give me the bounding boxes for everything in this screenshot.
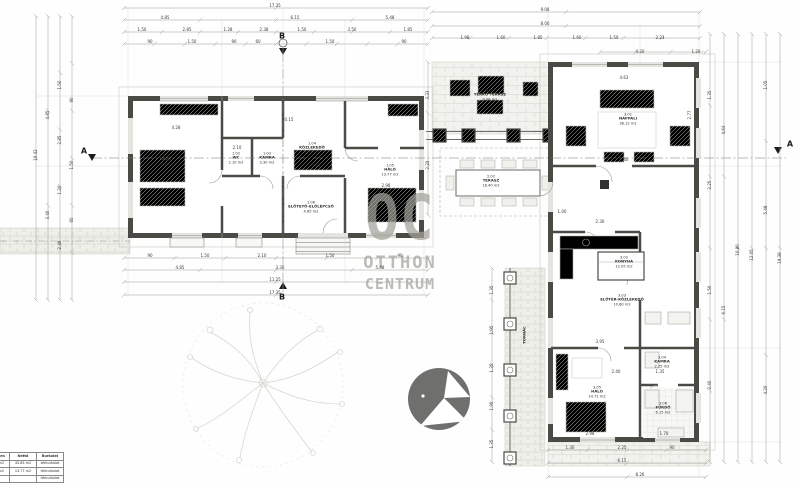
- dimension-label: 5.48: [764, 206, 768, 215]
- room-label: 1.02WC2.10 m2: [229, 151, 244, 164]
- dimension-label: 4.85: [161, 16, 170, 20]
- room-label: 1.06ELŐTETŐ-ELŐLÉPCSŐ4.85 m2: [288, 200, 334, 213]
- dimension-label: 2.10: [258, 254, 267, 258]
- dimension-label: 1.35: [490, 440, 494, 449]
- dimension-label: 90: [70, 97, 74, 102]
- dimension-label: 1.30: [566, 446, 575, 450]
- room-label-nm: TORNÁC: [523, 326, 528, 344]
- dimension-label: 1.50: [326, 254, 335, 258]
- dimension-label: 2.98: [382, 184, 391, 188]
- dimension-label: 2.40: [58, 241, 62, 250]
- dimension-label: 1.98: [461, 36, 470, 40]
- dimension-label: 8.00: [541, 22, 550, 26]
- room-label-ar: 2.10 m2: [229, 160, 244, 164]
- dimension-label: 4.85: [176, 266, 185, 270]
- dimension-label: 3.30: [276, 266, 285, 270]
- dimension-label: 1.85: [404, 28, 413, 32]
- dimension-label: 1.60: [497, 36, 506, 40]
- dimension-label: 6.15: [618, 459, 627, 463]
- tree-sketch: [183, 303, 345, 467]
- floor-plan-linework: [0, 0, 800, 487]
- room-label-ar: 18.40 m2: [482, 183, 499, 187]
- dimension-label: 1.50: [298, 28, 307, 32]
- dimension-label: 2.38: [260, 28, 269, 32]
- dimension-label: 1.70: [660, 432, 669, 436]
- dimension-label: 90: [401, 40, 406, 44]
- dimension-label: 6.15: [291, 16, 300, 20]
- stone-walkway-left: [0, 228, 130, 254]
- dimension-label: 90: [397, 254, 402, 258]
- dimension-label: 90: [147, 254, 152, 258]
- area-table-cell: térburkolat: [37, 475, 64, 483]
- area-table-header: Nettó: [10, 453, 37, 461]
- dimension-label: 2.40: [708, 381, 712, 390]
- room-label: 3.06FÜRDŐ6.15 m2: [656, 401, 671, 414]
- dimension-label: 2.25: [708, 181, 712, 190]
- room-label: 1.04KÖZLEKEDŐ6.15 m2: [299, 141, 325, 154]
- dimension-label: 1.35: [490, 286, 494, 295]
- dimension-label: 1.20: [58, 186, 62, 195]
- area-table-cell: térburkolat: [37, 460, 64, 468]
- dimension-label: 4.28: [172, 126, 181, 130]
- dimension-label: 1.50: [201, 254, 210, 258]
- dimension-label: 2.40: [612, 370, 621, 374]
- room-label-ar: 14.71 m2: [588, 394, 605, 398]
- room-label-ar: 6.15 m2: [299, 150, 325, 154]
- room-label-ar: 2.25 m2: [654, 364, 670, 368]
- dimension-label: 4.40: [620, 158, 629, 162]
- area-table-cell: 13.77 m2: [0, 468, 10, 476]
- dimension-label: 1.28: [224, 28, 233, 32]
- dimension-label: 1.50: [610, 36, 619, 40]
- area-table-cell: 13.77 m2: [10, 468, 37, 476]
- section-marker-a: A: [81, 147, 87, 156]
- dimension-label: 2.10: [233, 146, 242, 150]
- dimension-label: 5.48: [376, 266, 385, 270]
- dimension-label: 2.85: [58, 136, 62, 145]
- room-label-ar: 3.30 m2: [259, 160, 275, 164]
- dimension-label: 8.26: [636, 473, 645, 477]
- dimension-label: 1.00: [558, 210, 567, 214]
- dimension-label: 1.35: [656, 370, 665, 374]
- dimension-label: 1.50: [58, 81, 62, 90]
- dimension-label: 1.20: [692, 50, 701, 54]
- dimension-label: 1.35: [490, 364, 494, 373]
- room-label-ar: 13.77 m2: [381, 172, 398, 176]
- dimension-label: 1.50: [326, 40, 335, 44]
- dimension-label: 17.35: [269, 4, 280, 8]
- room-label: 1.03KAMRA3.30 m2: [259, 151, 275, 164]
- dimension-label: 1.60: [573, 36, 582, 40]
- area-table-cell: [10, 475, 37, 483]
- dimension-label: 3.50: [348, 28, 357, 32]
- dimension-label: 6.15: [722, 306, 726, 315]
- dimension-label: 1.35: [708, 91, 712, 100]
- area-table-cell: térburkolat: [37, 468, 64, 476]
- room-label: 2.01TÉRKŐ TERASZ9.08 m2: [474, 88, 506, 101]
- room-label: 3.04KAMRA2.25 m2: [654, 355, 670, 368]
- room-label: 2.02TERASZ18.40 m2: [482, 174, 499, 187]
- room-label: 3.05HÁLÓ14.71 m2: [588, 385, 605, 398]
- area-table-cell: 45.85 m2: [10, 460, 37, 468]
- dimension-label: 3.40: [46, 211, 50, 220]
- dimension-label: 11.25: [269, 278, 280, 282]
- dimension-label: 2.23: [426, 161, 430, 170]
- dimension-label: 10.42: [34, 149, 38, 160]
- dimension-label: 4.63: [620, 76, 629, 80]
- floor-plan-canvas: OC OTTHON CENTRUM 1.01HÁLÓ17.35 m21.02WC…: [0, 0, 800, 487]
- dimension-label: 10.80: [736, 244, 740, 255]
- room-label-ar: 9.08 m2: [474, 97, 506, 101]
- room-label-ar: 4.85 m2: [288, 209, 334, 213]
- area-table-cell: [0, 475, 10, 483]
- dimension-label: 4.85: [46, 111, 50, 120]
- dimension-label: 90: [669, 446, 674, 450]
- dimension-label: 2.85: [183, 28, 192, 32]
- dimension-label: 90: [231, 40, 236, 44]
- dimension-label: 9.08: [541, 8, 550, 12]
- dimension-label: 4.20: [636, 50, 645, 54]
- dimension-label: 2.23: [656, 36, 665, 40]
- section-marker-b: B: [279, 293, 285, 302]
- dimension-label: 1.50: [708, 286, 712, 295]
- dimension-label: 19.38: [778, 252, 782, 263]
- section-marker-a: A: [787, 140, 793, 149]
- room-label: 3.01NAPPALI38.12 m2: [619, 112, 637, 125]
- room-label: 3.03ELŐTÉR-KÖZLEKEDŐ10.80 m2: [600, 293, 644, 306]
- dimension-label: 60: [255, 40, 260, 44]
- dimension-label: 3.33: [426, 91, 430, 100]
- arrow-circle-logo: [408, 368, 470, 430]
- room-label-ar: 38.12 m2: [619, 121, 637, 125]
- dimension-label: 5.48: [386, 16, 395, 20]
- dimension-label: 60: [70, 217, 74, 222]
- dimension-label: 1.50: [138, 28, 147, 32]
- dimension-label: 3.95: [596, 340, 605, 344]
- dimension-label: 4.64: [722, 126, 726, 135]
- dimension-label: 1.50: [188, 40, 197, 44]
- area-table-cell: 45.85 m2: [0, 460, 10, 468]
- stove-symbol: [600, 180, 609, 189]
- room-label-ar: 17.35 m2: [158, 162, 175, 166]
- area-table-row: 45.85 m245.85 m2térburkolat: [0, 460, 64, 468]
- area-table-row: 13.77 m213.77 m2térburkolat: [0, 468, 64, 476]
- area-table: ÖsszesenNettóBurkolat 45.85 m245.85 m2té…: [0, 452, 64, 483]
- dimension-label: 1.05: [764, 81, 768, 90]
- dimension-label: 0.15: [285, 118, 294, 122]
- left-building: [128, 96, 424, 254]
- dimension-label: 2.77: [688, 111, 692, 120]
- dimension-label: 4.20: [764, 386, 768, 395]
- room-label-ar: 10.80 m2: [600, 302, 644, 306]
- dimension-label: 1.85: [534, 36, 543, 40]
- dimension-label: 2.98: [586, 432, 595, 436]
- dimension-label: 90: [147, 40, 152, 44]
- dimension-label: 1.95: [490, 326, 494, 335]
- room-label: 3.02KONYHA12.05 m2: [615, 255, 633, 268]
- dimension-label: 1.50: [70, 161, 74, 170]
- section-marker-b: B: [279, 32, 285, 41]
- room-label: TORNÁC: [523, 326, 528, 344]
- dimension-label: 2.25: [618, 446, 627, 450]
- dimension-label: 2.30: [596, 220, 605, 224]
- room-label: 1.05HÁLÓ13.77 m2: [381, 163, 398, 176]
- dimension-label: 12.05: [750, 249, 754, 260]
- area-table-header: Burkolat: [37, 453, 64, 461]
- dimension-label: 1.95: [490, 402, 494, 411]
- room-label-ar: 12.05 m2: [615, 264, 633, 268]
- room-label-ar: 6.15 m2: [656, 410, 671, 414]
- area-table-row: térburkolat: [0, 475, 64, 483]
- area-table-header: Összesen: [0, 453, 10, 461]
- room-label: 1.01HÁLÓ17.35 m2: [158, 153, 175, 166]
- dimension-label: 3.62: [312, 164, 321, 168]
